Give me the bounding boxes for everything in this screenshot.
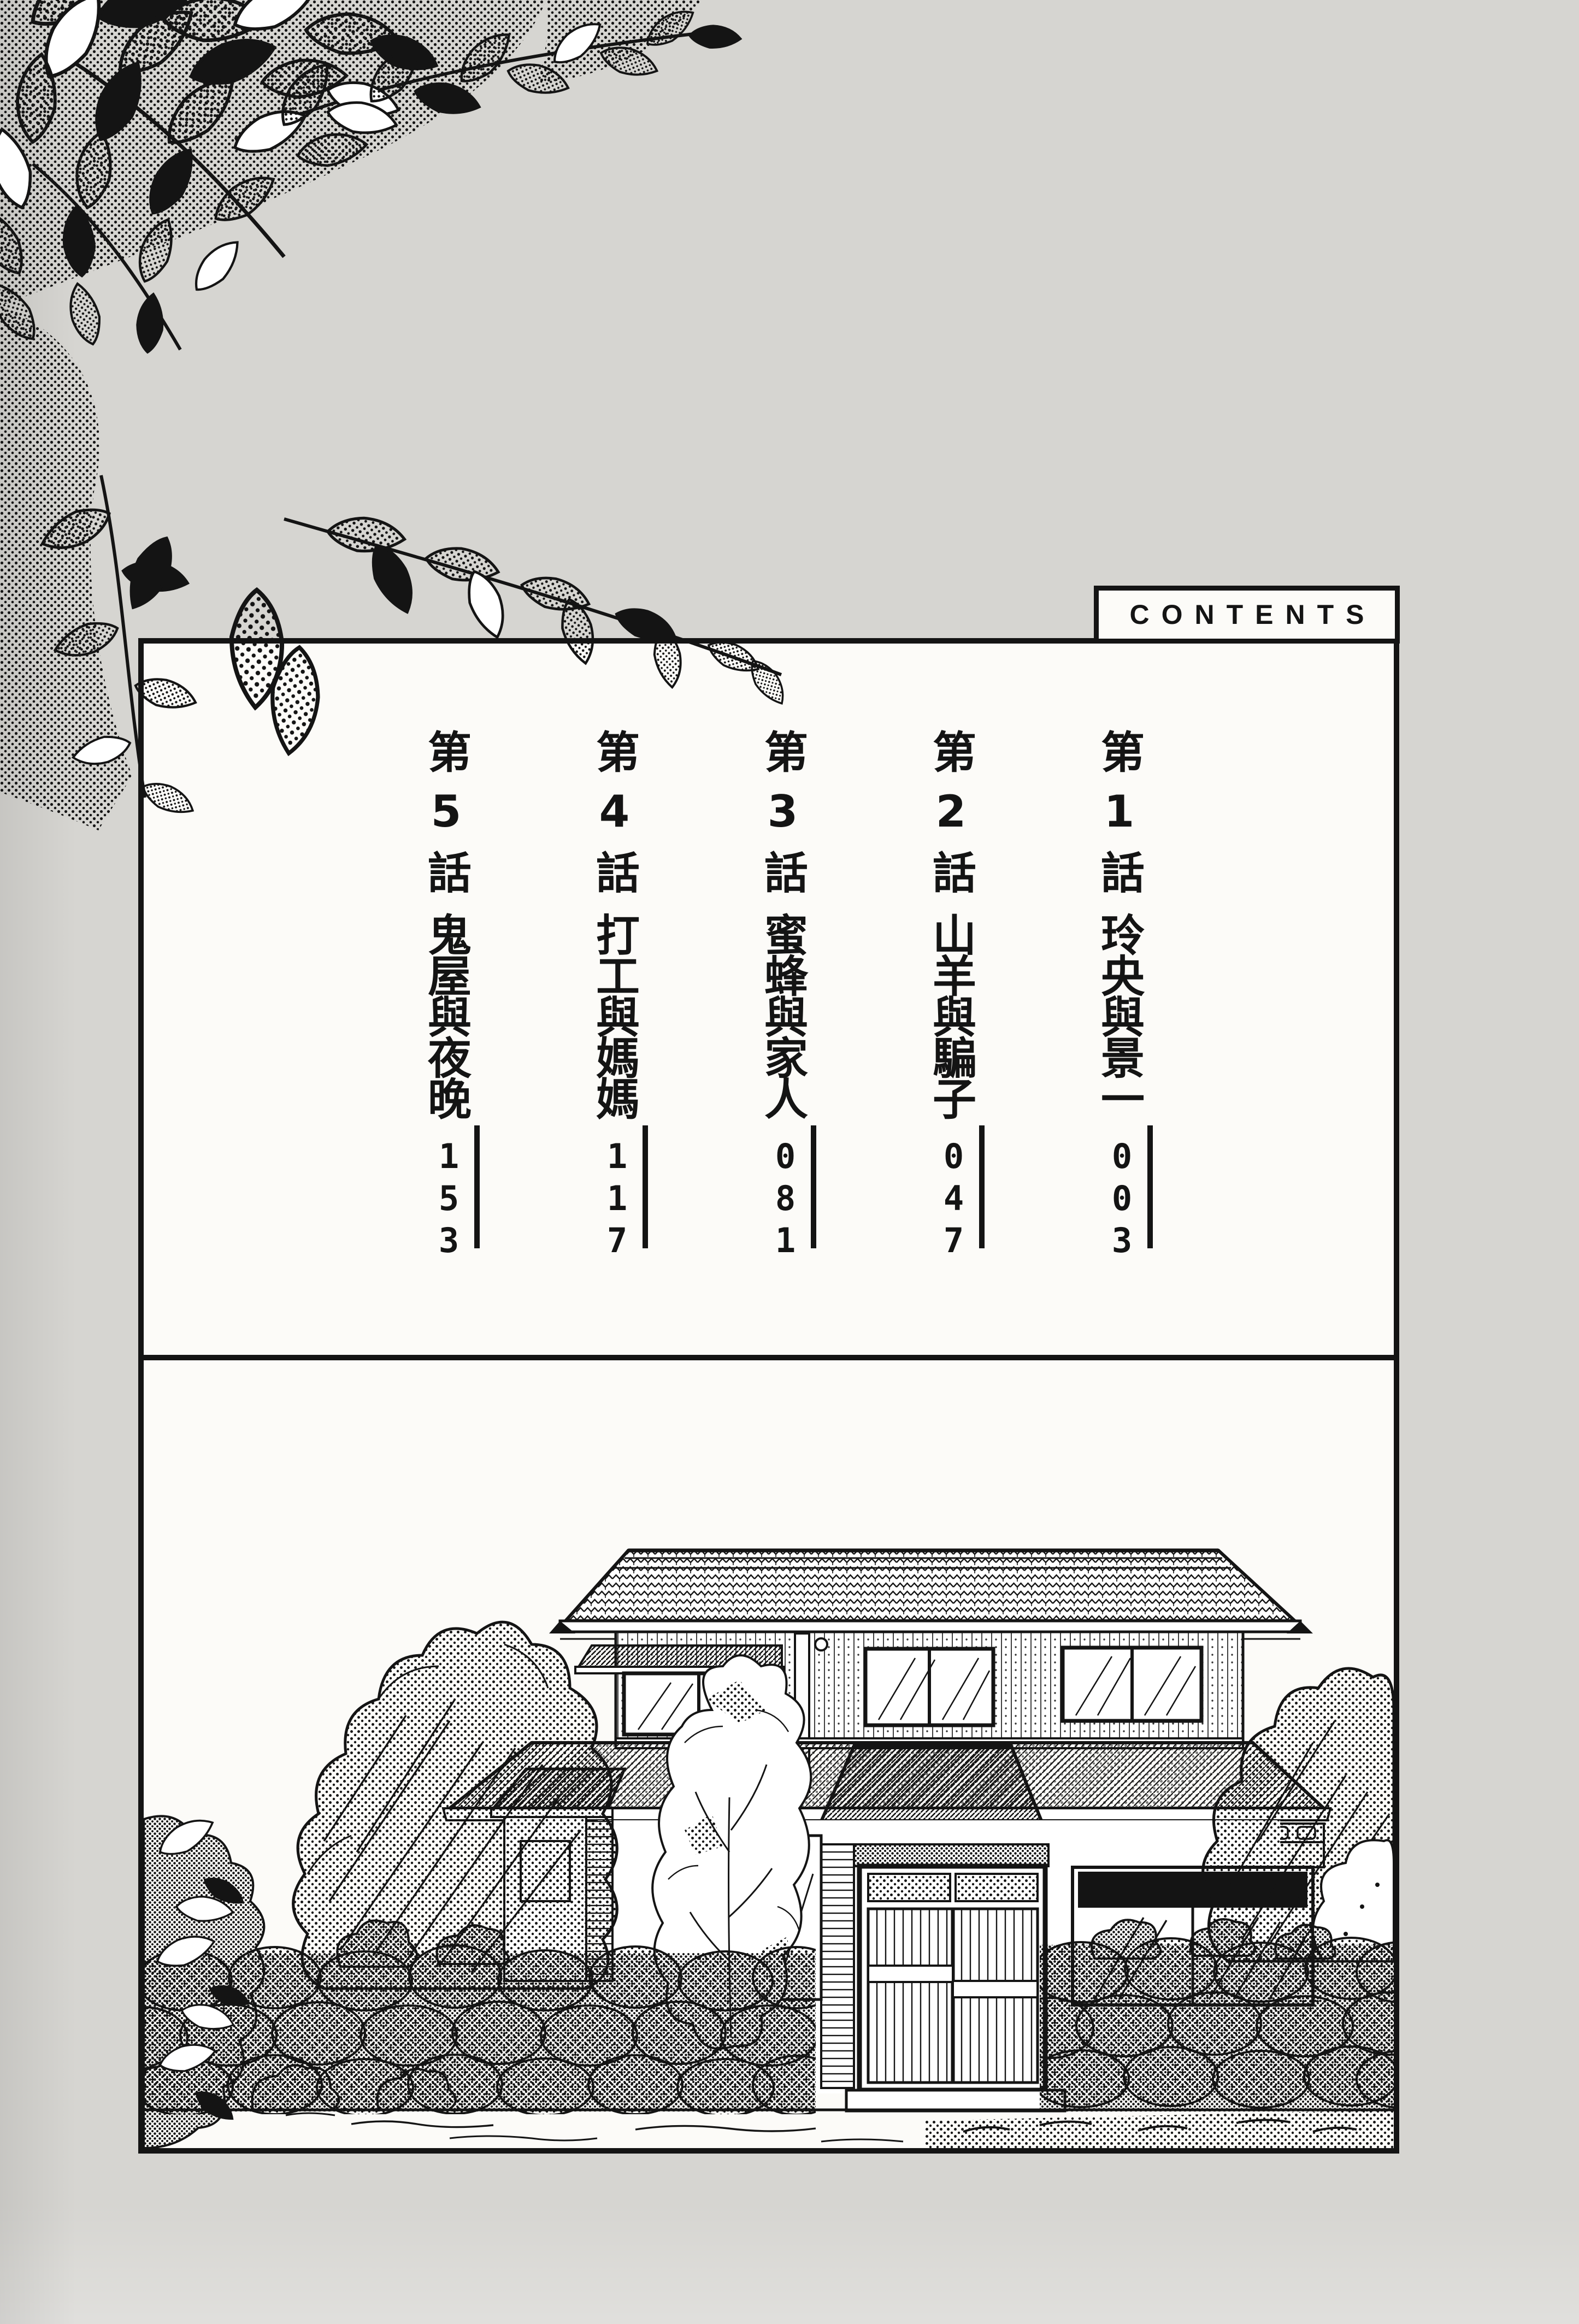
page-number-group: 047 <box>936 1125 985 1263</box>
house-illustration <box>144 1360 1394 2148</box>
chapter-title: 山羊與騙子 <box>919 912 982 1117</box>
hanging-leaves <box>116 531 326 757</box>
page-number-rule <box>474 1125 480 1248</box>
upper-roof <box>549 1550 1313 1639</box>
page-number-rule <box>979 1125 985 1248</box>
page-number: 153 <box>432 1136 466 1263</box>
contents-header: CONTENTS <box>1118 599 1376 630</box>
chapter-title: 打工與媽媽 <box>582 912 646 1117</box>
page-number-rule <box>643 1125 648 1248</box>
manga-contents-page: { "page": { "background_color": "#d6d5d1… <box>0 0 1579 2324</box>
page-number: 047 <box>936 1136 970 1263</box>
chapter-label: 第2話 <box>919 729 982 907</box>
page-number: 117 <box>600 1136 634 1263</box>
leaves-illustration <box>0 0 820 874</box>
page-number: 081 <box>768 1136 802 1263</box>
branch-lower-right <box>326 512 790 710</box>
house-illustration-panel <box>138 1355 1399 2154</box>
stone-wall-right <box>1008 1938 1394 2111</box>
page-number-group: 003 <box>1105 1125 1153 1263</box>
page-number: 003 <box>1105 1136 1139 1263</box>
chapter-label: 第1話 <box>1087 729 1151 907</box>
contents-header-box: CONTENTS <box>1094 586 1400 644</box>
chapter-title: 蜜蜂與家人 <box>751 912 814 1117</box>
page-number-group: 153 <box>432 1125 480 1263</box>
page-number-rule <box>811 1125 816 1248</box>
toc-entry-2: 第2話 山羊與騙子 047 <box>912 644 989 1266</box>
toc-entry-1: 第1話 玲央與景一 003 <box>1081 644 1157 1266</box>
window-2f-middle <box>865 1649 993 1725</box>
chapter-title: 玲央與景一 <box>1087 912 1151 1117</box>
entrance <box>846 1844 1065 2111</box>
page-number-group: 117 <box>600 1125 648 1263</box>
entrance-step <box>846 2090 1065 2111</box>
window-2f-right <box>1063 1648 1201 1721</box>
page-number-rule <box>1147 1125 1153 1248</box>
page-number-group: 081 <box>768 1125 816 1263</box>
chapter-title: 鬼屋與夜晚 <box>414 912 478 1117</box>
sliding-door <box>868 1909 1038 2083</box>
porch-side-clapboard <box>821 1844 854 2088</box>
